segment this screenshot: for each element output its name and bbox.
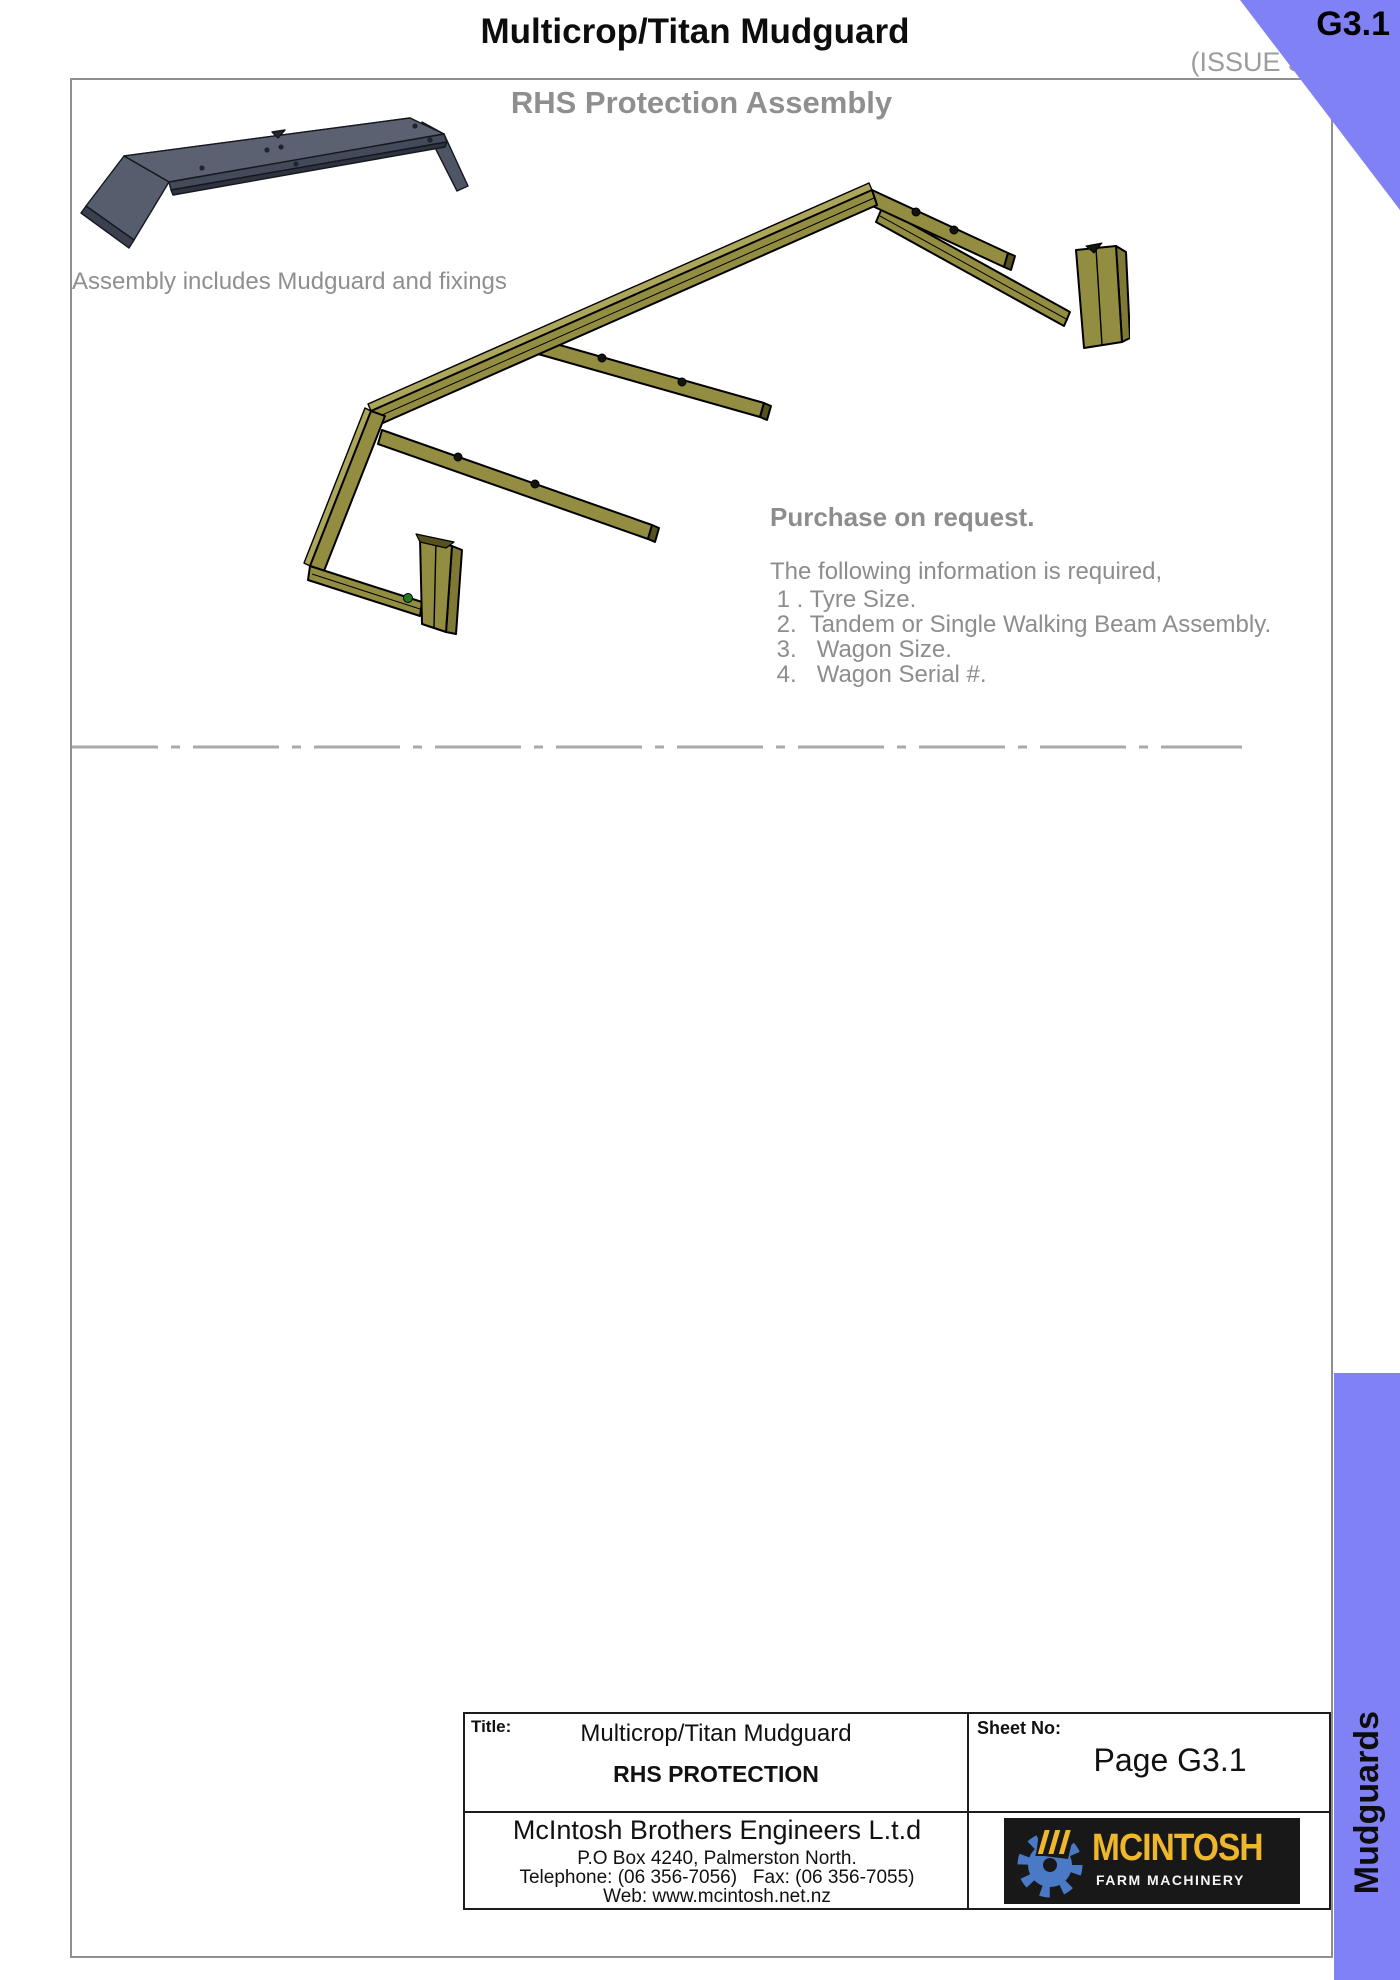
logo-tagline: FARM MACHINERY bbox=[1096, 1872, 1245, 1888]
sheet-label: Sheet No: bbox=[977, 1718, 1061, 1739]
title-subtitle: RHS PROTECTION bbox=[465, 1761, 967, 1788]
info-item: 1 . Tyre Size. bbox=[770, 587, 1271, 612]
sheet-value: Page G3.1 bbox=[969, 1742, 1329, 1779]
info-item: 2. Tandem or Single Walking Beam Assembl… bbox=[770, 612, 1271, 637]
company-web: Web: www.mcintosh.net.nz bbox=[465, 1886, 969, 1908]
info-item: 4. Wagon Serial #. bbox=[770, 662, 1271, 687]
page: Multicrop/Titan Mudguard (ISSUE 3) G3.1 … bbox=[0, 0, 1400, 1980]
info-intro: The following information is required, bbox=[770, 558, 1162, 586]
info-item: 3. Wagon Size. bbox=[770, 637, 1271, 662]
sidebar-label-wrap: Mudguards bbox=[1334, 1673, 1400, 1933]
gear-icon bbox=[1014, 1823, 1090, 1899]
info-list: 1 . Tyre Size. 2. Tandem or Single Walki… bbox=[770, 587, 1271, 687]
sidebar: Mudguards bbox=[1334, 1373, 1400, 1980]
title-block: Title: Multicrop/Titan Mudguard RHS PROT… bbox=[463, 1712, 1331, 1910]
logo: MCINTOSH FARM MACHINERY bbox=[1004, 1818, 1300, 1904]
logo-name: MCINTOSH bbox=[1092, 1827, 1263, 1870]
sidebar-label: Mudguards bbox=[1348, 1711, 1387, 1894]
company-name: McIntosh Brothers Engineers L.t.d bbox=[465, 1815, 969, 1846]
title-block-hline bbox=[465, 1811, 1329, 1813]
title-value: Multicrop/Titan Mudguard bbox=[465, 1720, 967, 1748]
page-title: Multicrop/Titan Mudguard bbox=[0, 12, 1390, 52]
section-divider bbox=[72, 744, 1242, 750]
purchase-heading: Purchase on request. bbox=[770, 502, 1034, 533]
corner-label: G3.1 bbox=[1316, 5, 1390, 44]
